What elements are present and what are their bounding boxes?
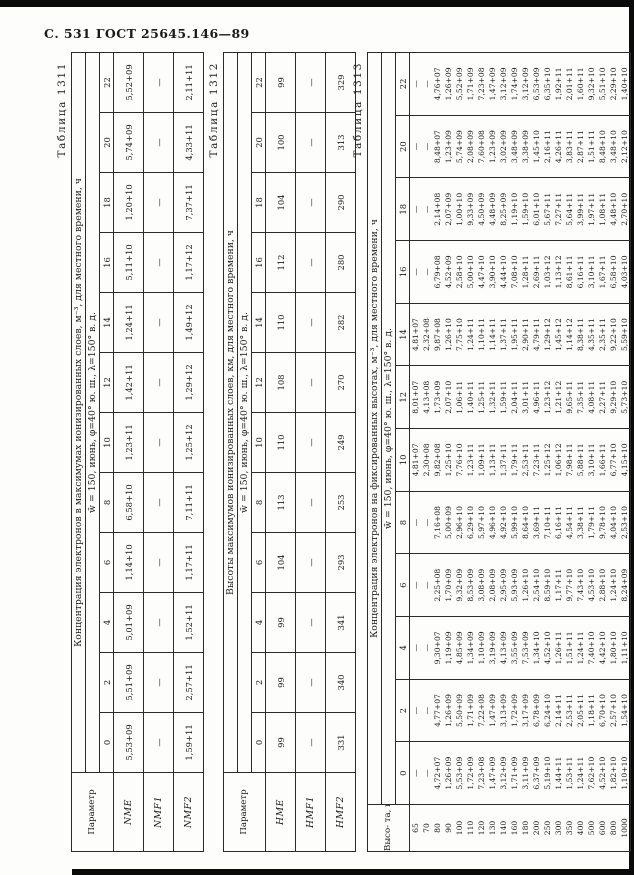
value-cell: 4,33+11 bbox=[174, 113, 204, 173]
value-cell: — bbox=[296, 713, 326, 773]
data-row: HME99999910411311010811011210410099 bbox=[266, 53, 296, 852]
value-cell: — bbox=[144, 533, 174, 593]
value-cell: — bbox=[296, 293, 326, 353]
value-cell: 6,29+10 bbox=[465, 491, 476, 554]
value-cell: 3,08+09 bbox=[476, 554, 487, 617]
value-cell: 4,96+11 bbox=[531, 366, 542, 429]
value-cell: 1,72+09 bbox=[509, 679, 520, 742]
value-cell: 1,74+09 bbox=[509, 53, 520, 116]
value-cell: 4,48+09 bbox=[487, 178, 498, 241]
value-cell: 4,35+11 bbox=[586, 303, 597, 366]
value-cell: — bbox=[410, 241, 422, 304]
value-cell: — bbox=[296, 113, 326, 173]
value-cell: 1,19+09 bbox=[443, 617, 454, 680]
data-row: 2505,19+106,24+104,52+108,59+107,10+111,… bbox=[542, 53, 553, 852]
value-cell: 1,47+09 bbox=[487, 679, 498, 742]
value-cell: 1,25+12 bbox=[174, 413, 204, 473]
value-cell: — bbox=[410, 491, 422, 554]
value-cell: — bbox=[296, 533, 326, 593]
value-cell: 1,70+09 bbox=[443, 554, 454, 617]
value-cell: 110 bbox=[266, 413, 296, 473]
value-cell: 1,23+09 bbox=[487, 115, 498, 178]
value-cell: 7,75+10 bbox=[454, 303, 465, 366]
row-label: HMF2 bbox=[326, 773, 356, 852]
time-header-cell: 6 bbox=[100, 533, 114, 593]
value-cell: — bbox=[296, 413, 326, 473]
value-cell: 112 bbox=[266, 233, 296, 293]
value-cell: 5,50+09 bbox=[454, 679, 465, 742]
value-cell: 270 bbox=[326, 353, 356, 413]
value-cell: — bbox=[421, 491, 432, 554]
value-cell: 1,51+11 bbox=[586, 115, 597, 178]
time-header-cell: 22 bbox=[396, 53, 410, 116]
value-cell: 1,34+09 bbox=[465, 617, 476, 680]
value-cell: 9,29+10 bbox=[608, 366, 619, 429]
value-cell: 1,14+11 bbox=[487, 303, 498, 366]
value-cell: — bbox=[410, 115, 422, 178]
value-cell: 6,58+10 bbox=[114, 473, 144, 533]
value-cell: — bbox=[296, 233, 326, 293]
value-cell: — bbox=[296, 53, 326, 113]
value-cell: 8,48+07 bbox=[432, 115, 443, 178]
value-cell: 9,78+10 bbox=[597, 491, 608, 554]
value-cell: 1,73+09 bbox=[432, 366, 443, 429]
time-header-cell: 2 bbox=[396, 679, 410, 742]
row-label: 160 bbox=[509, 805, 520, 852]
row-label: 250 bbox=[542, 805, 553, 852]
value-cell: 1,10+11 bbox=[476, 303, 487, 366]
data-row: 4001,24+112,05+111,24+117,43+103,38+115,… bbox=[575, 53, 586, 852]
value-cell: 313 bbox=[326, 113, 356, 173]
table-caption: Таблица 1312 bbox=[208, 52, 223, 852]
value-cell: 2,25+08 bbox=[432, 554, 443, 617]
value-cell: 2,14+11 bbox=[553, 679, 564, 742]
value-cell: 1,23+12 bbox=[542, 366, 553, 429]
value-cell: 1,23+09 bbox=[443, 115, 454, 178]
value-cell: 1,52+11 bbox=[174, 593, 204, 653]
row-label: 500 bbox=[586, 805, 597, 852]
value-cell: 1,17+11 bbox=[553, 554, 564, 617]
time-header-cell: 2 bbox=[252, 653, 266, 713]
value-cell: 4,48+10 bbox=[608, 178, 619, 241]
data-row: 8001,82+102,57+101,80+101,24+104,04+106,… bbox=[608, 53, 619, 852]
value-cell: 4,81+07 bbox=[410, 429, 422, 492]
value-cell: 7,22+08 bbox=[476, 679, 487, 742]
value-cell: — bbox=[410, 554, 422, 617]
data-row: HMF2331340341293253249270282280290313329 bbox=[326, 53, 356, 852]
value-cell: 1,29+12 bbox=[174, 353, 204, 413]
value-cell: 1,34+10 bbox=[531, 617, 542, 680]
value-cell: 1,67+11 bbox=[597, 241, 608, 304]
value-cell: 9,22+10 bbox=[608, 303, 619, 366]
time-header-row: 0246810121416182022 bbox=[100, 53, 114, 852]
value-cell: 2,58+10 bbox=[454, 241, 465, 304]
value-cell: 8,01+07 bbox=[410, 366, 422, 429]
time-header-cell: 6 bbox=[396, 554, 410, 617]
value-cell: 5,53+09 bbox=[454, 742, 465, 805]
time-header-row: 0246810121416182022 bbox=[396, 53, 410, 852]
time-header-cell: 18 bbox=[396, 178, 410, 241]
value-cell: 2,87+11 bbox=[575, 115, 586, 178]
value-cell: 1,14+10 bbox=[114, 533, 144, 593]
value-cell: 1,23+11 bbox=[114, 413, 144, 473]
data-row: 70—————2,30+084,13+082,32+08———— bbox=[421, 53, 432, 852]
value-cell: 2,30+08 bbox=[421, 429, 432, 492]
data-row: 1301,47+091,47+093,19+092,08+094,96+101,… bbox=[487, 53, 498, 852]
value-cell: 3,12+09 bbox=[520, 53, 531, 116]
value-cell: 1,06+12 bbox=[553, 429, 564, 492]
time-header-cell: 12 bbox=[100, 353, 114, 413]
time-header-cell: 6 bbox=[252, 533, 266, 593]
value-cell: 1,06+11 bbox=[454, 366, 465, 429]
value-cell: 3,90+10 bbox=[487, 241, 498, 304]
table-caption: Таблица 1311 bbox=[56, 52, 71, 852]
time-header-cell: 18 bbox=[252, 173, 266, 233]
data-row: NME5,53+095,51+095,01+091,14+106,58+101,… bbox=[114, 53, 144, 852]
value-cell: 7,35+11 bbox=[575, 366, 586, 429]
time-header-cell: 4 bbox=[252, 593, 266, 653]
time-header-cell: 10 bbox=[100, 413, 114, 473]
value-cell: 2,90+11 bbox=[520, 303, 531, 366]
value-cell: 5,88+11 bbox=[575, 429, 586, 492]
value-cell: 4,85+09 bbox=[454, 617, 465, 680]
value-cell: 1,26+10 bbox=[520, 554, 531, 617]
value-cell: — bbox=[296, 353, 326, 413]
value-cell: 9,30+07 bbox=[432, 617, 443, 680]
row-label: 300 bbox=[553, 805, 564, 852]
value-cell: 1,17+12 bbox=[174, 233, 204, 293]
time-header-cell: 12 bbox=[252, 353, 266, 413]
value-cell: 4,81+07 bbox=[410, 303, 422, 366]
data-row: 2006,37+096,78+091,34+102,54+103,69+117,… bbox=[531, 53, 542, 852]
value-cell: 4,96+10 bbox=[487, 491, 498, 554]
value-cell: 4,53+10 bbox=[586, 554, 597, 617]
table-title: Высоты максимумов ионизированных слоев, … bbox=[224, 53, 238, 773]
value-cell: — bbox=[421, 53, 432, 116]
value-cell: 5,64+11 bbox=[564, 178, 575, 241]
data-row: NMF21,59+112,57+111,52+111,17+117,11+111… bbox=[174, 53, 204, 852]
value-cell: 340 bbox=[326, 653, 356, 713]
value-cell: 3,38+11 bbox=[575, 491, 586, 554]
value-cell: 1,95+11 bbox=[509, 303, 520, 366]
time-header-cell: 10 bbox=[396, 429, 410, 492]
time-header-cell: 18 bbox=[100, 173, 114, 233]
value-cell: 4,52+10 bbox=[597, 742, 608, 805]
value-cell: 9,32+09 bbox=[454, 554, 465, 617]
value-cell: 5,74+09 bbox=[114, 113, 144, 173]
value-cell: 1,54+10 bbox=[619, 679, 631, 742]
value-cell: 3,48+10 bbox=[608, 115, 619, 178]
table-grid: ПараметрВысоты максимумов ионизированных… bbox=[223, 52, 356, 852]
value-cell: 6,01+10 bbox=[531, 178, 542, 241]
value-cell: 341 bbox=[326, 593, 356, 653]
value-cell: — bbox=[421, 115, 432, 178]
row-label: 350 bbox=[564, 805, 575, 852]
value-cell: 4,13+09 bbox=[498, 617, 509, 680]
value-cell: 1,59+11 bbox=[498, 366, 509, 429]
table-mount-1311: ПараметрКонцентрация электронов в максим… bbox=[71, 52, 204, 852]
value-cell: 5,74+09 bbox=[454, 115, 465, 178]
value-cell: 2,11+11 bbox=[174, 53, 204, 113]
value-cell: — bbox=[144, 353, 174, 413]
row-label: 180 bbox=[520, 805, 531, 852]
value-cell: 108 bbox=[266, 353, 296, 413]
value-cell: 6,16+11 bbox=[553, 491, 564, 554]
value-cell: 7,37+11 bbox=[174, 173, 204, 233]
value-cell: 1,28+11 bbox=[520, 241, 531, 304]
rotated-table-band-1311: Таблица 1311 ПараметрКонцентрация электр… bbox=[56, 52, 197, 852]
value-cell: 1,60+11 bbox=[575, 53, 586, 116]
data-row: 10001,10+101,54+101,11+108,24+092,53+104… bbox=[619, 53, 631, 852]
row-label: NMF1 bbox=[144, 773, 174, 852]
value-cell: — bbox=[144, 653, 174, 713]
regime-row: w̄ = 150, июнь, φ=40° ю. ш., λ=150° в. д… bbox=[86, 53, 100, 852]
regime-line: w̄ = 150, июнь, φ=40° ю. ш., λ=150° в. д… bbox=[86, 53, 100, 773]
value-cell: 1,25+11 bbox=[476, 366, 487, 429]
value-cell: 249 bbox=[326, 413, 356, 473]
time-header-row: 0246810121416182022 bbox=[252, 53, 266, 852]
value-cell: — bbox=[410, 679, 422, 742]
row-label: 800 bbox=[608, 805, 619, 852]
table-title: Концентрация электронов на фиксированных… bbox=[368, 53, 382, 805]
value-cell: 110 bbox=[266, 293, 296, 353]
value-cell: 1,72+09 bbox=[465, 742, 476, 805]
time-header-cell: 20 bbox=[252, 113, 266, 173]
value-cell: 4,13+08 bbox=[421, 366, 432, 429]
value-cell: 1,03+12 bbox=[542, 241, 553, 304]
time-header-cell: 20 bbox=[396, 115, 410, 178]
value-cell: 99 bbox=[266, 653, 296, 713]
value-cell: 6,78+09 bbox=[531, 679, 542, 742]
value-cell: 1,59+10 bbox=[520, 178, 531, 241]
value-cell: 1,40+11 bbox=[465, 366, 476, 429]
time-header-cell: 0 bbox=[252, 713, 266, 773]
value-cell: — bbox=[144, 233, 174, 293]
value-cell: 7,23+11 bbox=[531, 429, 542, 492]
value-cell: 7,23+08 bbox=[476, 742, 487, 805]
value-cell: 2,88+10 bbox=[597, 554, 608, 617]
value-cell: 6,16+11 bbox=[575, 241, 586, 304]
param-header: Высо- та, км bbox=[368, 805, 410, 852]
time-header-cell: 10 bbox=[252, 413, 266, 473]
value-cell: 1,29+12 bbox=[542, 303, 553, 366]
row-label: 1000 bbox=[619, 805, 631, 852]
value-cell: 4,54+11 bbox=[564, 491, 575, 554]
value-cell: 1,24+10 bbox=[608, 554, 619, 617]
value-cell: 5,19+10 bbox=[542, 742, 553, 805]
value-cell: 1,40+10 bbox=[619, 53, 631, 116]
value-cell: 1,24+11 bbox=[575, 617, 586, 680]
value-cell: 7,53+09 bbox=[520, 617, 531, 680]
time-header-cell: 14 bbox=[396, 303, 410, 366]
value-cell: 4,04+10 bbox=[608, 491, 619, 554]
value-cell: 1,44+11 bbox=[553, 742, 564, 805]
value-cell: 2,35+11 bbox=[597, 303, 608, 366]
value-cell: — bbox=[296, 173, 326, 233]
value-cell: — bbox=[421, 679, 432, 742]
time-header-cell: 20 bbox=[100, 113, 114, 173]
value-cell: 104 bbox=[266, 533, 296, 593]
param-header: Параметр bbox=[72, 773, 114, 852]
header-row: ПараметрВысоты максимумов ионизированных… bbox=[224, 53, 238, 852]
value-cell: 1,92+11 bbox=[553, 53, 564, 116]
data-row: 3501,53+112,53+111,51+119,77+104,54+117,… bbox=[564, 53, 575, 852]
rotated-table-band-1312: Таблица 1312 ПараметрВысоты максимумов и… bbox=[208, 52, 349, 852]
row-label: 120 bbox=[476, 805, 487, 852]
value-cell: 282 bbox=[326, 293, 356, 353]
time-header-cell: 22 bbox=[252, 53, 266, 113]
value-cell: 6,79+08 bbox=[432, 241, 443, 304]
value-cell: 1,97+11 bbox=[586, 178, 597, 241]
value-cell: — bbox=[296, 473, 326, 533]
value-cell: 2,96+10 bbox=[454, 491, 465, 554]
value-cell: 5,11+10 bbox=[114, 233, 144, 293]
time-header-cell: 22 bbox=[100, 53, 114, 113]
value-cell: 1,26+11 bbox=[553, 617, 564, 680]
data-row: 804,72+074,77+079,30+072,25+087,16+089,8… bbox=[432, 53, 443, 852]
value-cell: 2,12+10 bbox=[619, 115, 631, 178]
value-cell: 1,13+11 bbox=[487, 429, 498, 492]
value-cell: 2,70+10 bbox=[619, 178, 631, 241]
value-cell: 1,79+11 bbox=[586, 491, 597, 554]
data-row: 6004,52+106,70+104,42+102,88+109,78+101,… bbox=[597, 53, 608, 852]
value-cell: 1,10+09 bbox=[476, 617, 487, 680]
page-header: С. 531 ГОСТ 25645.146—89 bbox=[44, 26, 250, 41]
table-grid: Высо- та, кмКонцентрация электронов на ф… bbox=[367, 52, 631, 852]
data-row: 1101,72+091,71+091,34+098,53+096,29+101,… bbox=[465, 53, 476, 852]
time-header-cell: 4 bbox=[396, 617, 410, 680]
value-cell: 1,45+12 bbox=[553, 303, 564, 366]
value-cell: 3,69+11 bbox=[531, 491, 542, 554]
value-cell: 3,48+09 bbox=[509, 115, 520, 178]
value-cell: 8,61+11 bbox=[564, 241, 575, 304]
value-cell: 1,37+11 bbox=[498, 303, 509, 366]
row-label: 200 bbox=[531, 805, 542, 852]
value-cell: 290 bbox=[326, 173, 356, 233]
value-cell: 1,21+12 bbox=[553, 366, 564, 429]
value-cell: 9,87+08 bbox=[432, 303, 443, 366]
value-cell: — bbox=[144, 173, 174, 233]
value-cell: 1,08+11 bbox=[597, 178, 608, 241]
value-cell: — bbox=[421, 554, 432, 617]
value-cell: 3,12+09 bbox=[498, 742, 509, 805]
value-cell: — bbox=[421, 241, 432, 304]
value-cell: 3,12+09 bbox=[498, 53, 509, 116]
value-cell: 280 bbox=[326, 233, 356, 293]
value-cell: — bbox=[410, 617, 422, 680]
value-cell: 1,49+12 bbox=[174, 293, 204, 353]
time-header-cell: 8 bbox=[252, 473, 266, 533]
value-cell: 9,32+10 bbox=[586, 53, 597, 116]
value-cell: 104 bbox=[266, 173, 296, 233]
value-cell: 3,11+09 bbox=[520, 742, 531, 805]
value-cell: 4,15+10 bbox=[619, 429, 631, 492]
row-label: HMF1 bbox=[296, 773, 326, 852]
value-cell: 3,83+11 bbox=[564, 115, 575, 178]
value-cell: 1,00+10 bbox=[454, 178, 465, 241]
value-cell: 1,14+12 bbox=[564, 303, 575, 366]
value-cell: 1,47+09 bbox=[487, 742, 498, 805]
value-cell: 2,53+10 bbox=[619, 491, 631, 554]
value-cell: 1,24+11 bbox=[575, 742, 586, 805]
value-cell: 1,23+11 bbox=[465, 429, 476, 492]
value-cell: 8,59+10 bbox=[542, 554, 553, 617]
value-cell: 5,99+10 bbox=[509, 491, 520, 554]
value-cell: — bbox=[144, 113, 174, 173]
value-cell: 7,60+08 bbox=[476, 115, 487, 178]
regime-row: w̄ = 150, июнь, φ=40° ю. ш., λ=150° в. д… bbox=[382, 53, 396, 852]
value-cell: 2,01+11 bbox=[564, 53, 575, 116]
value-cell: 1,71+09 bbox=[509, 742, 520, 805]
value-cell: 3,38+09 bbox=[520, 115, 531, 178]
value-cell: 1,82+10 bbox=[608, 742, 619, 805]
time-header-cell: 0 bbox=[100, 713, 114, 773]
value-cell: 1,24+11 bbox=[114, 293, 144, 353]
value-cell: 6,24+10 bbox=[542, 679, 553, 742]
value-cell: 3,02+09 bbox=[498, 115, 509, 178]
value-cell: 7,27+11 bbox=[553, 178, 564, 241]
value-cell: 8,25+09 bbox=[498, 178, 509, 241]
value-cell: 2,14+08 bbox=[432, 178, 443, 241]
value-cell: — bbox=[410, 178, 422, 241]
value-cell: — bbox=[144, 473, 174, 533]
value-cell: 2,07+10 bbox=[443, 366, 454, 429]
time-header-cell: 14 bbox=[100, 293, 114, 353]
value-cell: 2,27+11 bbox=[597, 366, 608, 429]
value-cell: 4,52+10 bbox=[542, 617, 553, 680]
value-cell: 5,73+10 bbox=[619, 366, 631, 429]
value-cell: 5,51+10 bbox=[597, 53, 608, 116]
value-cell: 1,19+10 bbox=[509, 178, 520, 241]
value-cell: 7,16+08 bbox=[432, 491, 443, 554]
value-cell: 1,45+10 bbox=[531, 115, 542, 178]
value-cell: 5,67+11 bbox=[542, 178, 553, 241]
value-cell: 5,52+09 bbox=[454, 53, 465, 116]
value-cell: 2,57+11 bbox=[174, 653, 204, 713]
value-cell: 1,47+09 bbox=[487, 53, 498, 116]
data-row: 1207,23+087,22+081,10+093,08+095,97+101,… bbox=[476, 53, 487, 852]
value-cell: 1,59+11 bbox=[174, 713, 204, 773]
value-cell: 1,25+10 bbox=[443, 429, 454, 492]
value-cell: 1,79+11 bbox=[509, 429, 520, 492]
row-label: HME bbox=[266, 773, 296, 852]
value-cell: 2,08+09 bbox=[465, 115, 476, 178]
value-cell: — bbox=[144, 713, 174, 773]
data-row: 1803,11+093,17+097,53+091,26+108,64+102,… bbox=[520, 53, 531, 852]
value-cell: 99 bbox=[266, 713, 296, 773]
value-cell: 1,37+11 bbox=[498, 429, 509, 492]
value-cell: 3,13+09 bbox=[498, 679, 509, 742]
value-cell: 9,65+11 bbox=[564, 366, 575, 429]
value-cell: 7,43+10 bbox=[575, 554, 586, 617]
value-cell: 113 bbox=[266, 473, 296, 533]
value-cell: 1,51+11 bbox=[564, 617, 575, 680]
value-cell: 6,53+09 bbox=[531, 53, 542, 116]
data-row: 901,26+091,26+091,19+091,70+095,00+091,2… bbox=[443, 53, 454, 852]
time-header-cell: 2 bbox=[100, 653, 114, 713]
value-cell: 2,69+11 bbox=[531, 241, 542, 304]
value-cell: 4,72+07 bbox=[432, 742, 443, 805]
data-row: NMF1———————————— bbox=[144, 53, 174, 852]
value-cell: 9,82+08 bbox=[432, 429, 443, 492]
time-header-cell: 0 bbox=[396, 742, 410, 805]
value-cell: 1,11+10 bbox=[619, 617, 631, 680]
data-row: 65—————4,81+078,01+074,81+07———— bbox=[410, 53, 422, 852]
value-cell: 3,99+11 bbox=[575, 178, 586, 241]
value-cell: 2,05+11 bbox=[575, 679, 586, 742]
value-cell: 9,77+10 bbox=[564, 554, 575, 617]
value-cell: 6,35+10 bbox=[542, 53, 553, 116]
